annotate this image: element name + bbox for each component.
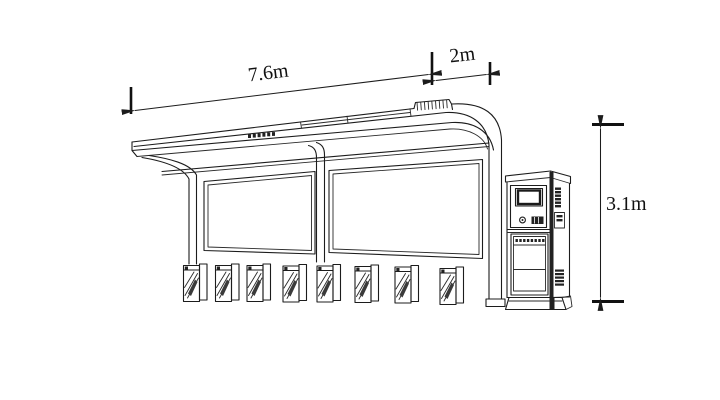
kiosk-side-vents <box>555 270 564 286</box>
seat-row <box>184 264 464 305</box>
seat-3 <box>247 264 271 302</box>
width-dimension: 7.6m <box>131 52 432 114</box>
under-canopy-rail <box>162 143 489 175</box>
right-frame <box>486 145 505 307</box>
kiosk-corner-band <box>550 172 554 310</box>
seat-8 <box>440 267 464 305</box>
kiosk-door-header-marks <box>516 239 545 242</box>
height-dimension-label: 3.1m <box>606 193 647 215</box>
bus-shelter-drawing: 7.6m 2m 3.1m <box>0 0 720 400</box>
kiosk-base <box>506 296 573 310</box>
ad-panel-right <box>329 160 483 259</box>
kiosk <box>506 171 573 310</box>
seat-5 <box>317 265 341 303</box>
kiosk-door <box>511 234 548 295</box>
seat-2 <box>216 264 240 302</box>
seat-6 <box>355 265 379 303</box>
seat-7 <box>395 266 419 304</box>
width-dimension-label: 7.6m <box>247 60 290 87</box>
kiosk-keypad-button <box>532 217 544 225</box>
depth-dimension: 2m <box>436 43 490 85</box>
seat-1 <box>184 264 208 302</box>
canopy-vent <box>414 100 453 111</box>
ad-panel-left <box>204 172 315 255</box>
depth-dimension-label: 2m <box>448 43 476 68</box>
kiosk-screen-panel <box>511 186 547 228</box>
drawing-canvas: 7.6m 2m 3.1m <box>0 0 720 400</box>
kiosk-cap <box>506 171 571 184</box>
middle-support <box>309 143 325 263</box>
canopy <box>132 100 502 157</box>
kiosk-side-marks <box>555 188 565 229</box>
depth-dimension-line <box>436 75 487 81</box>
height-dimension: 3.1m <box>592 125 647 302</box>
right-frame-foot <box>486 299 505 307</box>
left-support <box>142 156 197 265</box>
seat-4 <box>283 265 307 303</box>
